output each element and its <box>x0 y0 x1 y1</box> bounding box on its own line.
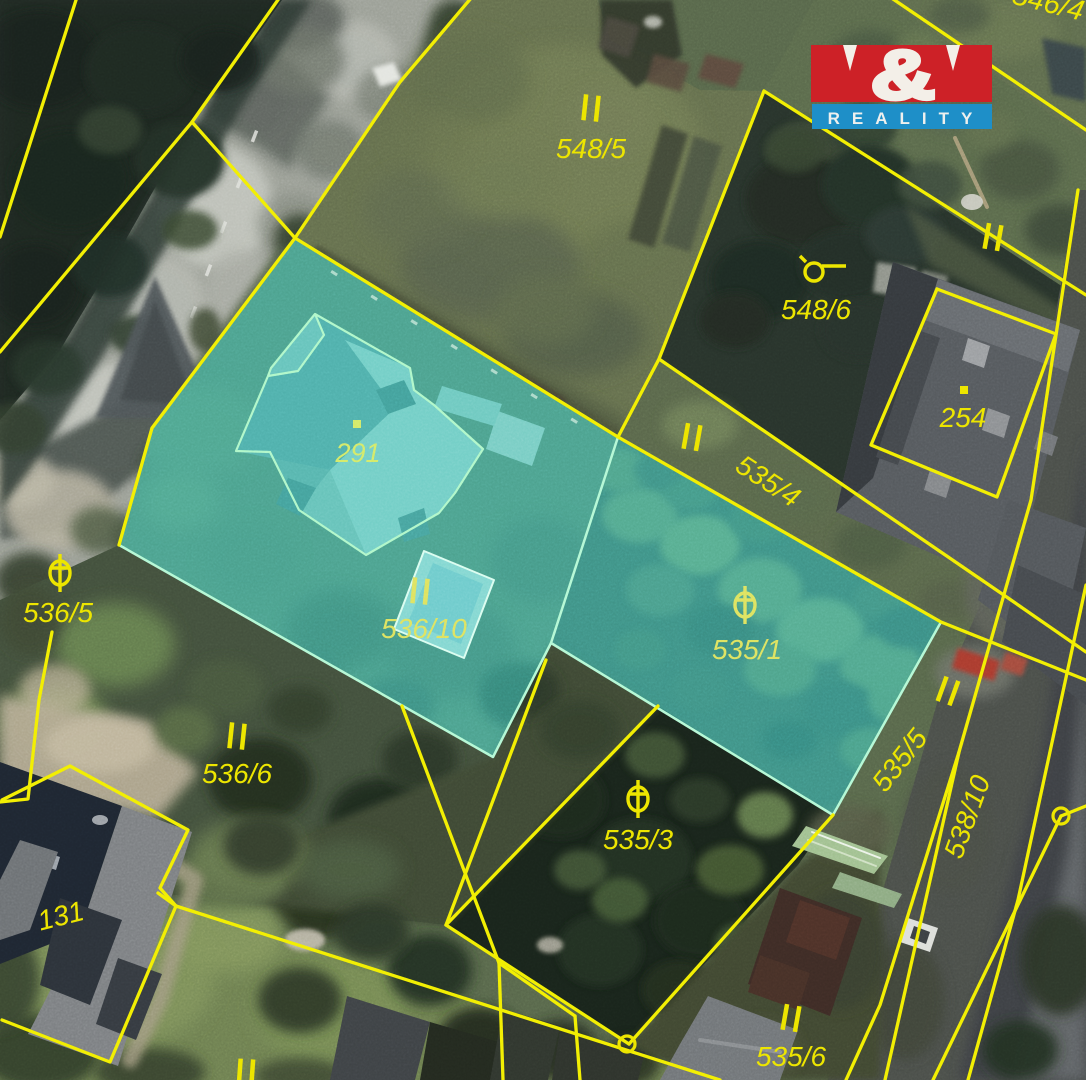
svg-text:&: & <box>871 36 936 114</box>
svg-text:REALITY: REALITY <box>828 109 985 128</box>
